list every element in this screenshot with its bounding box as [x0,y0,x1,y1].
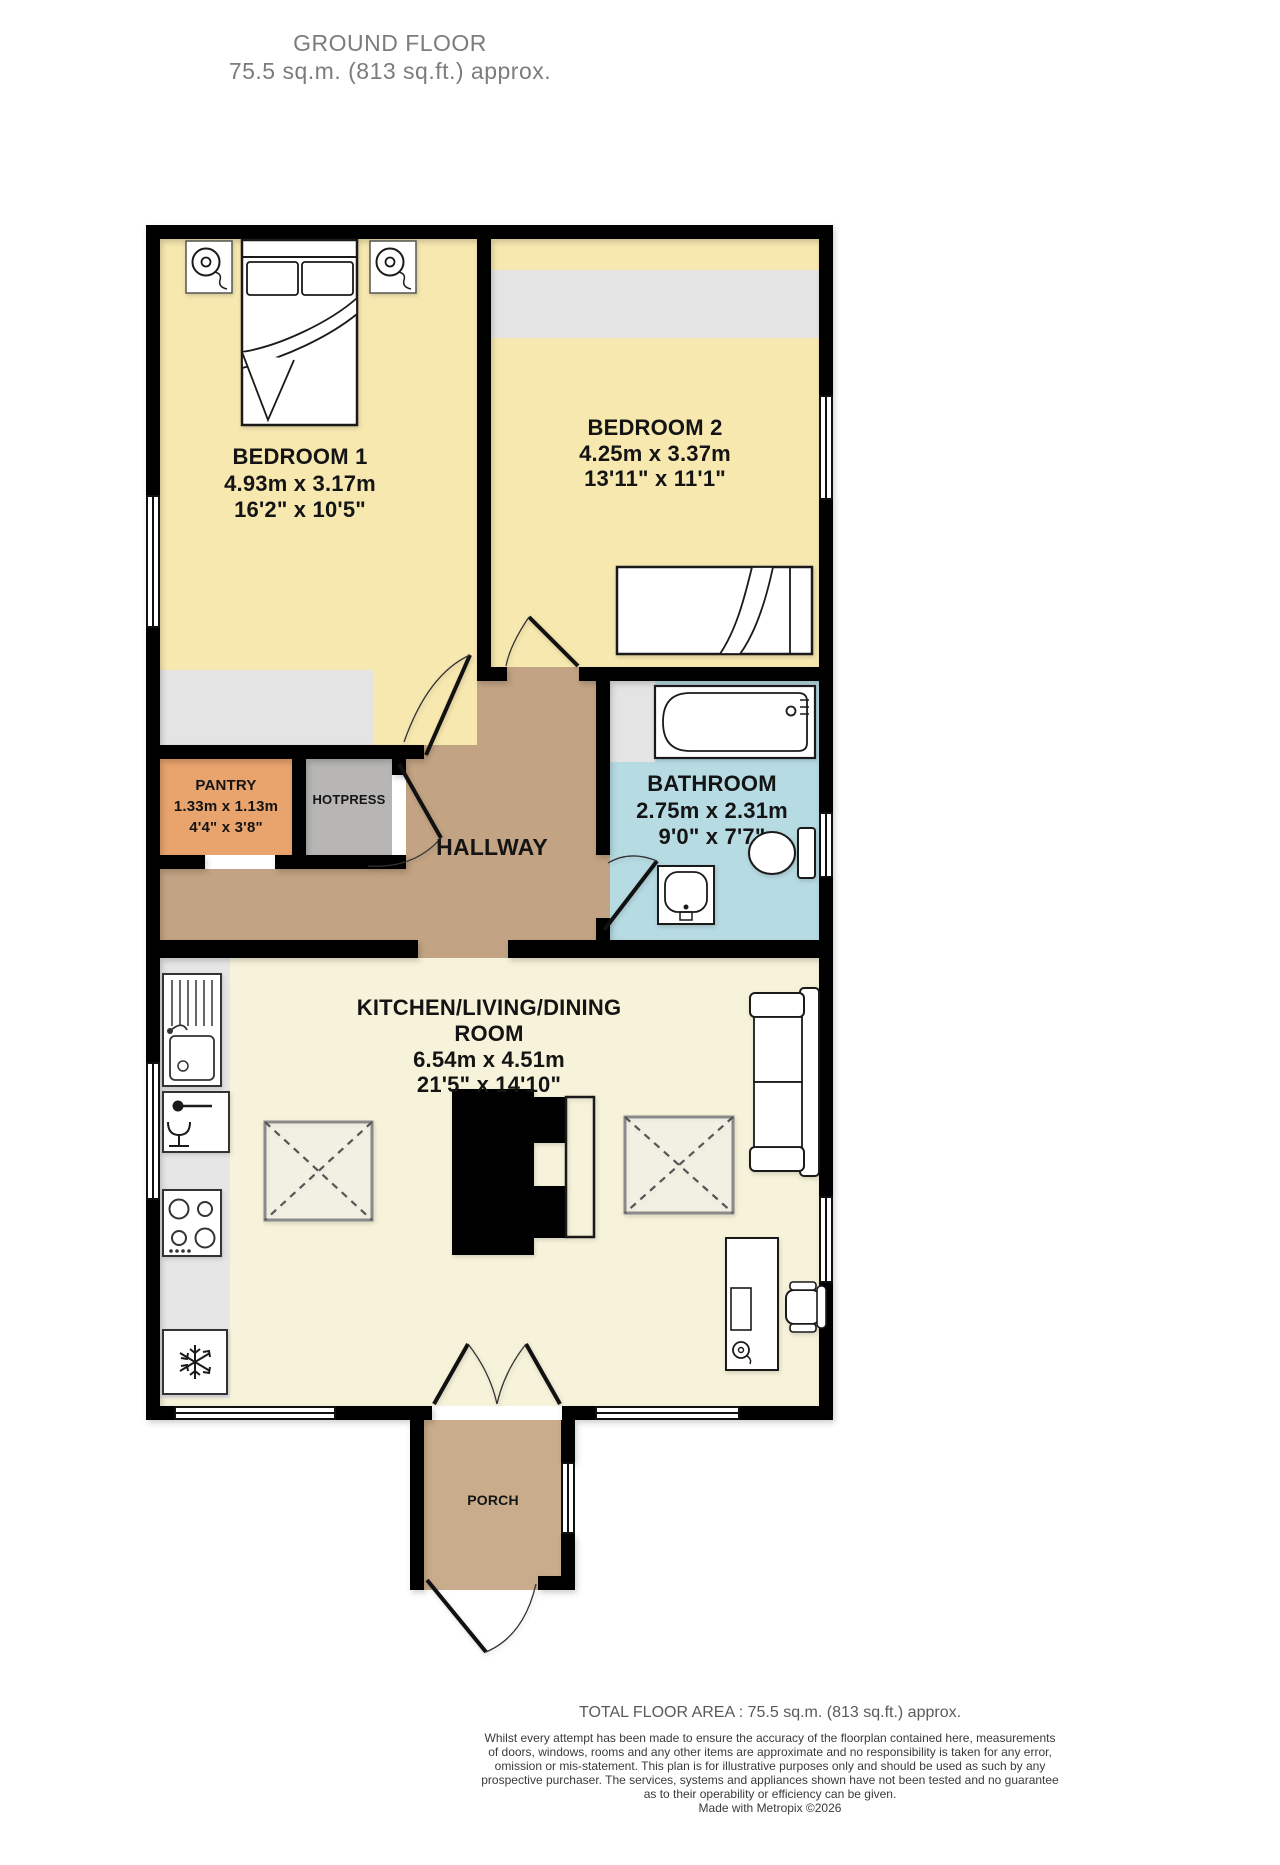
label-kitchen-metric: 6.54m x 4.51m [413,1047,565,1073]
wall-bed2-bottom-a [491,667,507,681]
footer-disclaimer-4: prospective purchaser. The services, sys… [481,1773,1058,1787]
label-kitchen-name-2: ROOM [454,1021,523,1047]
label-kitchen-name-1: KITCHEN/LIVING/DINING [357,995,622,1021]
wall-top [146,225,833,239]
wall-porch-left [410,1420,424,1590]
label-bathroom-imperial: 9'0" x 7'7" [659,824,766,850]
wall-pantry-right [292,759,306,869]
label-pantry-imperial: 4'4" x 3'8" [189,819,263,836]
footer-disclaimer-2: of doors, windows, rooms and any other i… [488,1745,1052,1759]
wall-kitchen-top-b [508,940,819,958]
window-kitchen-bottom-right [595,1406,740,1420]
wall-bed1-bottom [160,745,424,759]
wall-bed1-bed2 [477,239,491,681]
wall-kitchen-top-a [160,940,418,958]
window-bedroom1-left [146,495,160,628]
footer-disclaimer-5: as to their operability or efficiency ca… [644,1787,897,1801]
wall-porch-right-a [561,1420,575,1462]
label-bedroom2-metric: 4.25m x 3.37m [579,441,731,467]
label-bathroom-name: BATHROOM [647,771,777,797]
wall-pantry-bottom-a [160,855,205,869]
label-bedroom1-imperial: 16'2" x 10'5" [234,497,366,523]
wall-bathroom-left [596,681,610,855]
wall-hotpress-stub [392,759,406,775]
label-pantry-name: PANTRY [195,777,256,794]
window-bedroom2-right [819,395,833,500]
wall-left [146,225,160,1420]
label-kitchen-imperial: 21'5" x 14'10" [417,1072,561,1098]
label-porch-name: PORCH [467,1492,519,1508]
wall-pantry-bottom-b [275,855,292,869]
window-porch-right [561,1462,575,1534]
label-pantry-metric: 1.33m x 1.13m [174,798,278,815]
wall-porch-bottom-stub [538,1576,575,1590]
footer-credit: Made with Metropix ©2026 [699,1801,842,1815]
window-kitchen-bottom-left [174,1406,336,1420]
window-bathroom-right [819,812,833,878]
window-kitchen-left [146,1062,160,1200]
label-bedroom1-name: BEDROOM 1 [232,444,367,470]
window-kitchen-right [819,1196,833,1283]
label-bedroom2-name: BEDROOM 2 [587,415,722,441]
footer-disclaimer-1: Whilst every attempt has been made to en… [485,1731,1056,1745]
wall-hotpress-bottom [306,855,406,869]
label-bathroom-metric: 2.75m x 2.31m [636,798,788,824]
footer-total-area: TOTAL FLOOR AREA : 75.5 sq.m. (813 sq.ft… [579,1704,961,1722]
label-bedroom2-imperial: 13'11" x 11'1" [584,466,726,492]
footer-disclaimer-3: omission or mis-statement. This plan is … [495,1759,1046,1773]
walls [0,0,1280,1865]
wall-bed2-bottom-b [579,667,819,681]
floorplan-page: GROUND FLOOR 75.5 sq.m. (813 sq.ft.) app… [0,0,1280,1865]
label-hotpress-name: HOTPRESS [312,792,385,807]
label-bedroom1-metric: 4.93m x 3.17m [224,471,376,497]
label-hallway-name: HALLWAY [436,834,548,861]
